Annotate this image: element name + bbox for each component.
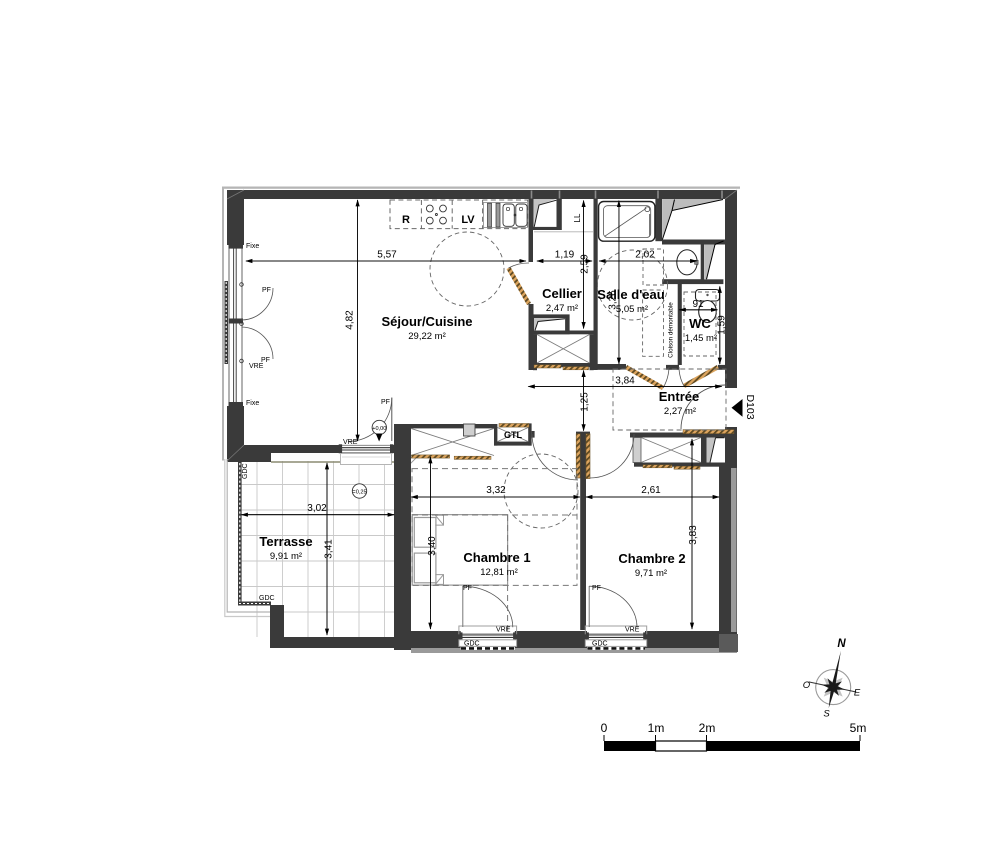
svg-text:Cellier: Cellier (542, 286, 582, 301)
svg-text:PF: PF (381, 399, 390, 406)
svg-text:VRE: VRE (343, 439, 358, 446)
svg-text:Entrée: Entrée (659, 389, 699, 404)
svg-text:=0,25: =0,25 (352, 490, 366, 496)
svg-text:VRE: VRE (249, 363, 264, 370)
svg-text:12,81 m²: 12,81 m² (480, 567, 518, 578)
svg-text:PF: PF (262, 287, 271, 294)
svg-text:3,83: 3,83 (688, 525, 699, 545)
svg-text:3,84: 3,84 (615, 376, 635, 387)
svg-text:3,32: 3,32 (486, 485, 506, 496)
svg-text:S: S (823, 709, 830, 720)
svg-text:N: N (837, 638, 846, 650)
svg-text:1,19: 1,19 (555, 250, 575, 261)
svg-text:5,57: 5,57 (377, 250, 397, 261)
svg-text:3,40: 3,40 (427, 536, 438, 556)
svg-text:Séjour/Cuisine: Séjour/Cuisine (381, 314, 472, 329)
svg-text:2,47 m²: 2,47 m² (546, 303, 578, 314)
svg-text:GDC: GDC (464, 641, 480, 648)
svg-text:GDC: GDC (592, 641, 608, 648)
svg-text:3,02: 3,02 (307, 503, 327, 514)
svg-text:1m: 1m (648, 721, 665, 735)
svg-text:E: E (854, 688, 861, 699)
svg-text:LV: LV (461, 214, 475, 226)
svg-text:Terrasse: Terrasse (259, 534, 312, 549)
svg-text:2,02: 2,02 (635, 250, 655, 261)
svg-text:R: R (402, 214, 410, 226)
svg-text:9,91 m²: 9,91 m² (270, 551, 302, 562)
svg-text:9,71 m²: 9,71 m² (635, 568, 667, 579)
svg-text:4,82: 4,82 (345, 310, 356, 330)
svg-text:Chambre 2: Chambre 2 (618, 551, 685, 566)
svg-text:91: 91 (692, 299, 704, 310)
svg-text:WC: WC (689, 316, 711, 331)
svg-text:PF: PF (592, 585, 601, 592)
svg-text:2,27 m²: 2,27 m² (664, 406, 696, 417)
svg-text:5m: 5m (850, 721, 867, 735)
svg-text:Chambre 1: Chambre 1 (463, 550, 530, 565)
svg-text:LL: LL (573, 213, 582, 222)
svg-text:+0,00: +0,00 (372, 426, 386, 432)
svg-text:5,05 m²: 5,05 m² (616, 304, 648, 315)
svg-text:D103: D103 (744, 394, 756, 419)
svg-text:1,45 m²: 1,45 m² (685, 333, 717, 344)
svg-text:VRE: VRE (625, 627, 640, 634)
svg-text:Fixe: Fixe (246, 400, 259, 407)
svg-text:Fixe: Fixe (246, 243, 259, 250)
svg-text:PF: PF (463, 585, 472, 592)
svg-text:0: 0 (601, 721, 608, 735)
svg-text:VRE: VRE (496, 627, 511, 634)
svg-text:29,22 m²: 29,22 m² (408, 331, 446, 342)
svg-text:GDC: GDC (242, 463, 249, 479)
svg-text:1,59: 1,59 (717, 315, 728, 335)
svg-text:O: O (803, 680, 811, 691)
svg-text:2m: 2m (699, 721, 716, 735)
svg-text:Cloison démontable: Cloison démontable (668, 302, 675, 358)
svg-text:GTL: GTL (504, 430, 522, 440)
svg-text:Salle d'eau: Salle d'eau (597, 287, 664, 302)
svg-text:GDC: GDC (259, 595, 275, 602)
svg-text:2,61: 2,61 (641, 485, 661, 496)
svg-text:2,59: 2,59 (580, 254, 591, 274)
svg-text:1,25: 1,25 (580, 392, 591, 412)
svg-text:3,41: 3,41 (324, 539, 335, 559)
